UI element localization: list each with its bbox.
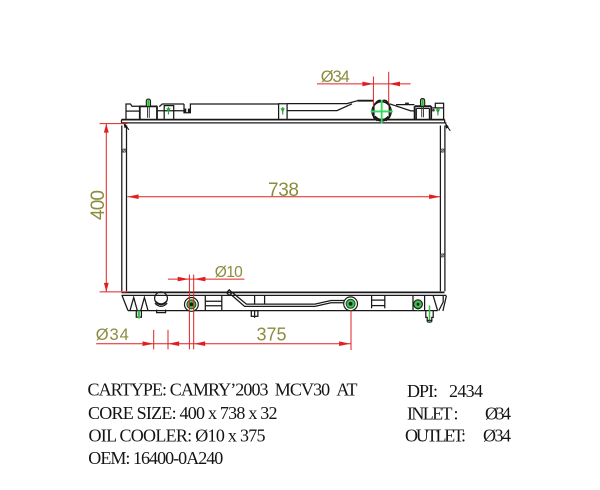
svg-text:Ø34: Ø34 [96, 326, 129, 344]
svg-text:CARTYPE: CAMRY’2003 MCV30 AT: CARTYPE: CAMRY’2003 MCV30 AT [88, 379, 358, 399]
svg-text:OIL COOLER: Ø10 x 375: OIL COOLER: Ø10 x 375 [89, 425, 266, 445]
svg-text:OEM: 16400-0A240: OEM: 16400-0A240 [88, 448, 223, 468]
svg-text:2434: 2434 [449, 381, 483, 401]
svg-text:400: 400 [88, 190, 109, 220]
svg-text:738: 738 [268, 180, 299, 201]
svg-text:DPI:: DPI: [407, 381, 438, 401]
svg-text:375: 375 [257, 325, 287, 345]
svg-text:Ø10: Ø10 [215, 264, 243, 281]
svg-text:INLET :: INLET : [407, 404, 459, 424]
svg-text:Ø34: Ø34 [321, 68, 350, 86]
svg-text:Ø34: Ø34 [483, 426, 511, 446]
svg-text:Ø34: Ø34 [485, 404, 511, 424]
svg-text:CORE SIZE: 400 x 738 x 32: CORE SIZE: 400 x 738 x 32 [88, 403, 278, 423]
svg-text:OUTLET:: OUTLET: [405, 426, 466, 446]
